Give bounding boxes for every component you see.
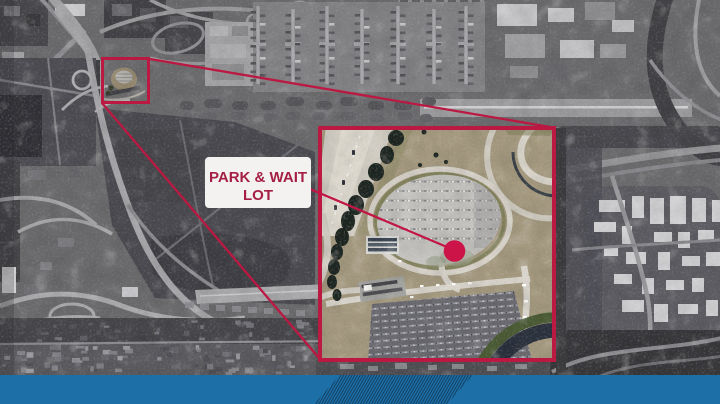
- svg-text:PARK & WAIT: PARK & WAIT: [209, 169, 307, 186]
- svg-text:LOT: LOT: [243, 187, 273, 204]
